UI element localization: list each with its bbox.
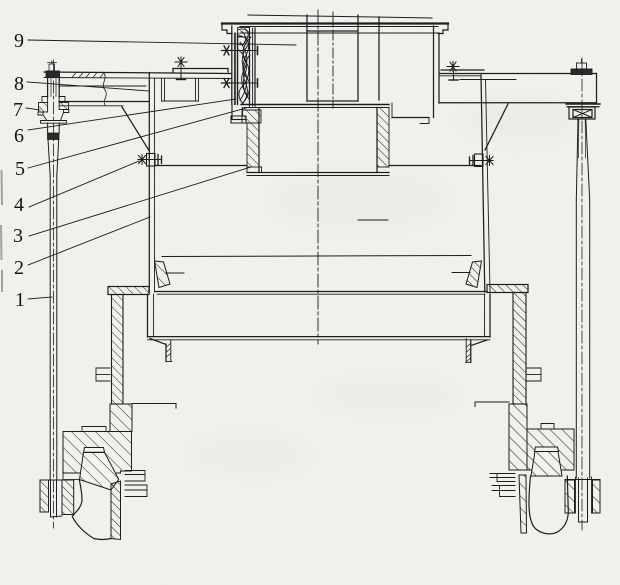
svg-text:2: 2 [14,257,24,279]
svg-text:3: 3 [13,225,23,247]
svg-text:5: 5 [15,158,25,180]
svg-text:8: 8 [14,73,24,95]
svg-text:6: 6 [14,125,24,147]
svg-text:4: 4 [14,194,24,216]
svg-text:9: 9 [14,30,24,52]
svg-text:7: 7 [13,99,23,121]
svg-text:1: 1 [15,289,25,311]
